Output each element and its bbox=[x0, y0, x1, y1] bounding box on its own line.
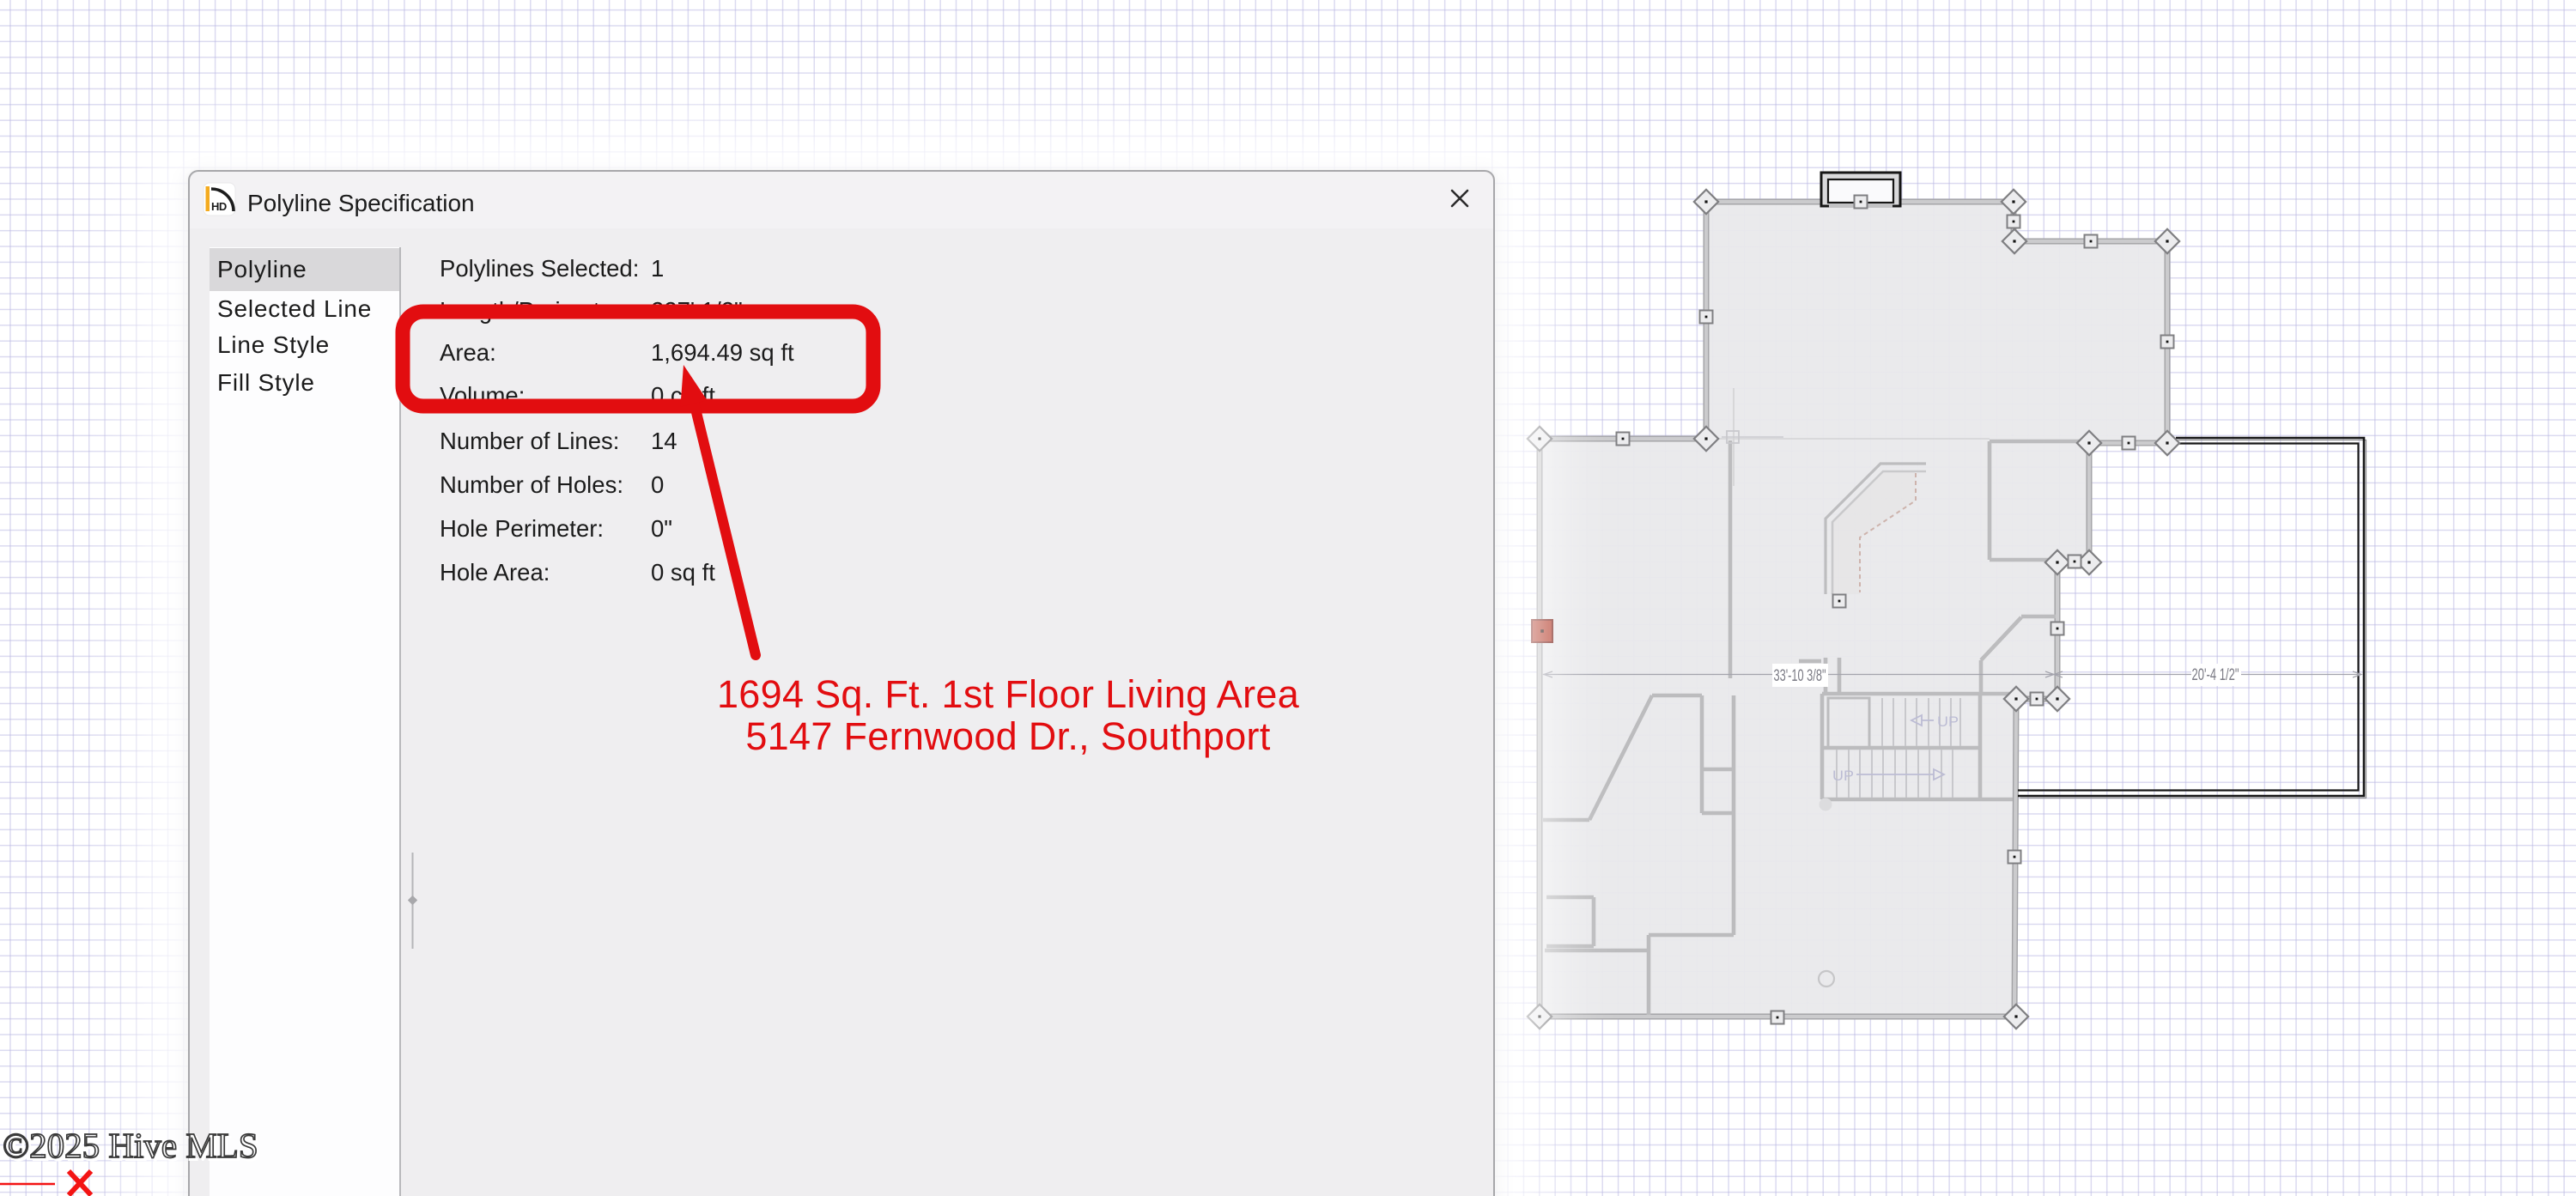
svg-text:Selected Line: Selected Line bbox=[217, 295, 372, 322]
svg-text:Polylines Selected:: Polylines Selected: bbox=[440, 255, 639, 282]
svg-text:Number of Holes:: Number of Holes: bbox=[440, 471, 623, 498]
svg-text:1,694.49 sq ft: 1,694.49 sq ft bbox=[651, 339, 794, 366]
svg-text:0 sq ft: 0 sq ft bbox=[651, 559, 715, 586]
svg-text:Area:: Area: bbox=[440, 339, 496, 366]
svg-text:Hole Area:: Hole Area: bbox=[440, 559, 550, 586]
svg-text:HD: HD bbox=[211, 200, 227, 213]
svg-text:1694 Sq. Ft. 1st Floor Living: 1694 Sq. Ft. 1st Floor Living Area bbox=[717, 672, 1300, 716]
svg-text:Fill Style: Fill Style bbox=[217, 369, 315, 396]
svg-text:5147 Fernwood Dr., Southport: 5147 Fernwood Dr., Southport bbox=[745, 714, 1270, 758]
svg-text:14: 14 bbox=[651, 428, 677, 454]
svg-text:0: 0 bbox=[651, 471, 664, 498]
svg-text:Polyline Specification: Polyline Specification bbox=[247, 190, 475, 216]
svg-text:Polyline: Polyline bbox=[217, 256, 307, 282]
svg-text:Line Style: Line Style bbox=[217, 331, 330, 358]
svg-text:©2025 Hive MLS: ©2025 Hive MLS bbox=[3, 1126, 258, 1165]
svg-text:1: 1 bbox=[651, 255, 664, 282]
svg-text:Hole Perimeter:: Hole Perimeter: bbox=[440, 515, 604, 542]
svg-text:0": 0" bbox=[651, 515, 672, 542]
svg-text:Number of Lines:: Number of Lines: bbox=[440, 428, 619, 454]
